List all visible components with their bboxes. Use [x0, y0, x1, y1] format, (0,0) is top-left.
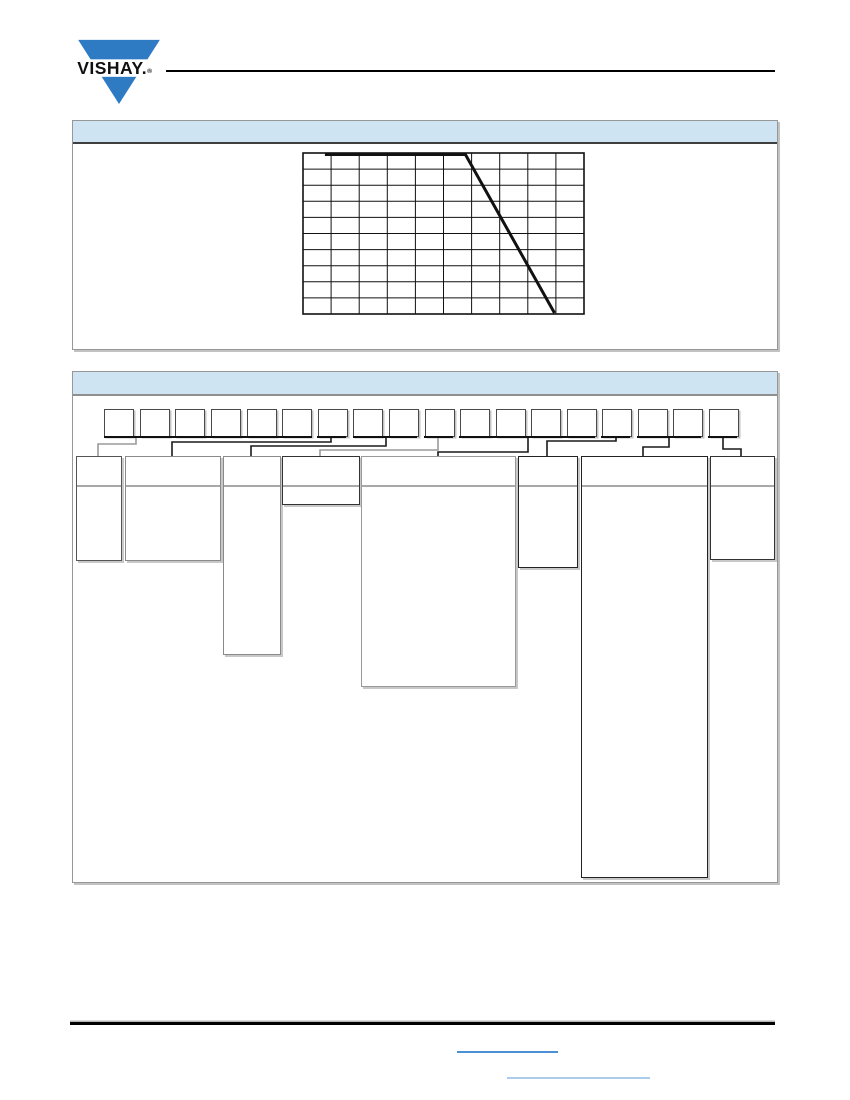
connector-elbow-line: [98, 438, 136, 456]
part-number-char-box: [104, 409, 134, 437]
description-box: [125, 456, 221, 561]
part-number-char-box: [531, 409, 561, 437]
footer-rule: [70, 1022, 775, 1025]
part-number-char-box: [353, 409, 383, 437]
derating-chart-svg: [301, 151, 586, 316]
derating-chart: [301, 151, 586, 316]
part-number-char-box: [496, 409, 526, 437]
description-box-header: [283, 457, 359, 487]
connector-elbow-line: [320, 438, 438, 456]
part-number-char-box: [211, 409, 241, 437]
part-number-char-box: [460, 409, 490, 437]
char-group-underline: [708, 436, 737, 438]
description-box: [581, 456, 708, 878]
connector-elbow-line: [438, 438, 528, 456]
footer-link-1[interactable]: [457, 1051, 558, 1053]
description-box: [518, 456, 578, 568]
connector-elbow-line: [547, 438, 616, 456]
connector-elbow-line: [643, 438, 669, 456]
description-box-header: [711, 457, 774, 487]
part-number-char-box: [282, 409, 312, 437]
char-group-underline: [601, 436, 630, 438]
part-number-char-box: [602, 409, 632, 437]
footer-link-2[interactable]: [507, 1077, 650, 1079]
description-box-header: [519, 457, 577, 487]
part-number-char-box: [425, 409, 455, 437]
description-box: [223, 456, 281, 655]
char-group-underline: [104, 436, 312, 438]
description-box-header: [126, 457, 220, 487]
char-group-underline: [317, 436, 346, 438]
panel-1-header-bar: [73, 121, 777, 144]
char-group-underline: [459, 436, 595, 438]
part-number-char-box: [318, 409, 348, 437]
description-box-header: [77, 457, 121, 487]
datasheet-page: VISHAY.®: [0, 0, 850, 1100]
description-box: [76, 456, 122, 561]
connector-elbow-line: [172, 438, 331, 456]
char-group-underline: [424, 436, 453, 438]
part-number-diagram: [73, 372, 777, 882]
header-rule: [166, 70, 775, 72]
part-number-char-box: [709, 409, 739, 437]
description-box: [282, 456, 360, 505]
logo-wordmark: VISHAY.®: [77, 58, 152, 78]
part-number-char-box: [673, 409, 703, 437]
char-group-underline: [637, 436, 701, 438]
description-box-header: [224, 457, 280, 487]
char-group-underline: [353, 436, 417, 438]
part-number-char-box: [389, 409, 419, 437]
description-box: [361, 456, 516, 687]
part-number-panel: [72, 371, 778, 883]
connector-elbow-line: [251, 438, 386, 456]
vishay-logo: VISHAY.®: [75, 36, 163, 106]
description-box: [710, 456, 775, 560]
description-box-header: [362, 457, 515, 487]
part-number-char-box: [247, 409, 277, 437]
connector-elbow-line: [723, 438, 741, 456]
part-number-char-box: [175, 409, 205, 437]
part-number-char-box: [567, 409, 597, 437]
description-box-header: [582, 457, 707, 487]
derating-graph-panel: [72, 120, 778, 350]
part-number-char-box: [638, 409, 668, 437]
part-number-char-box: [140, 409, 170, 437]
